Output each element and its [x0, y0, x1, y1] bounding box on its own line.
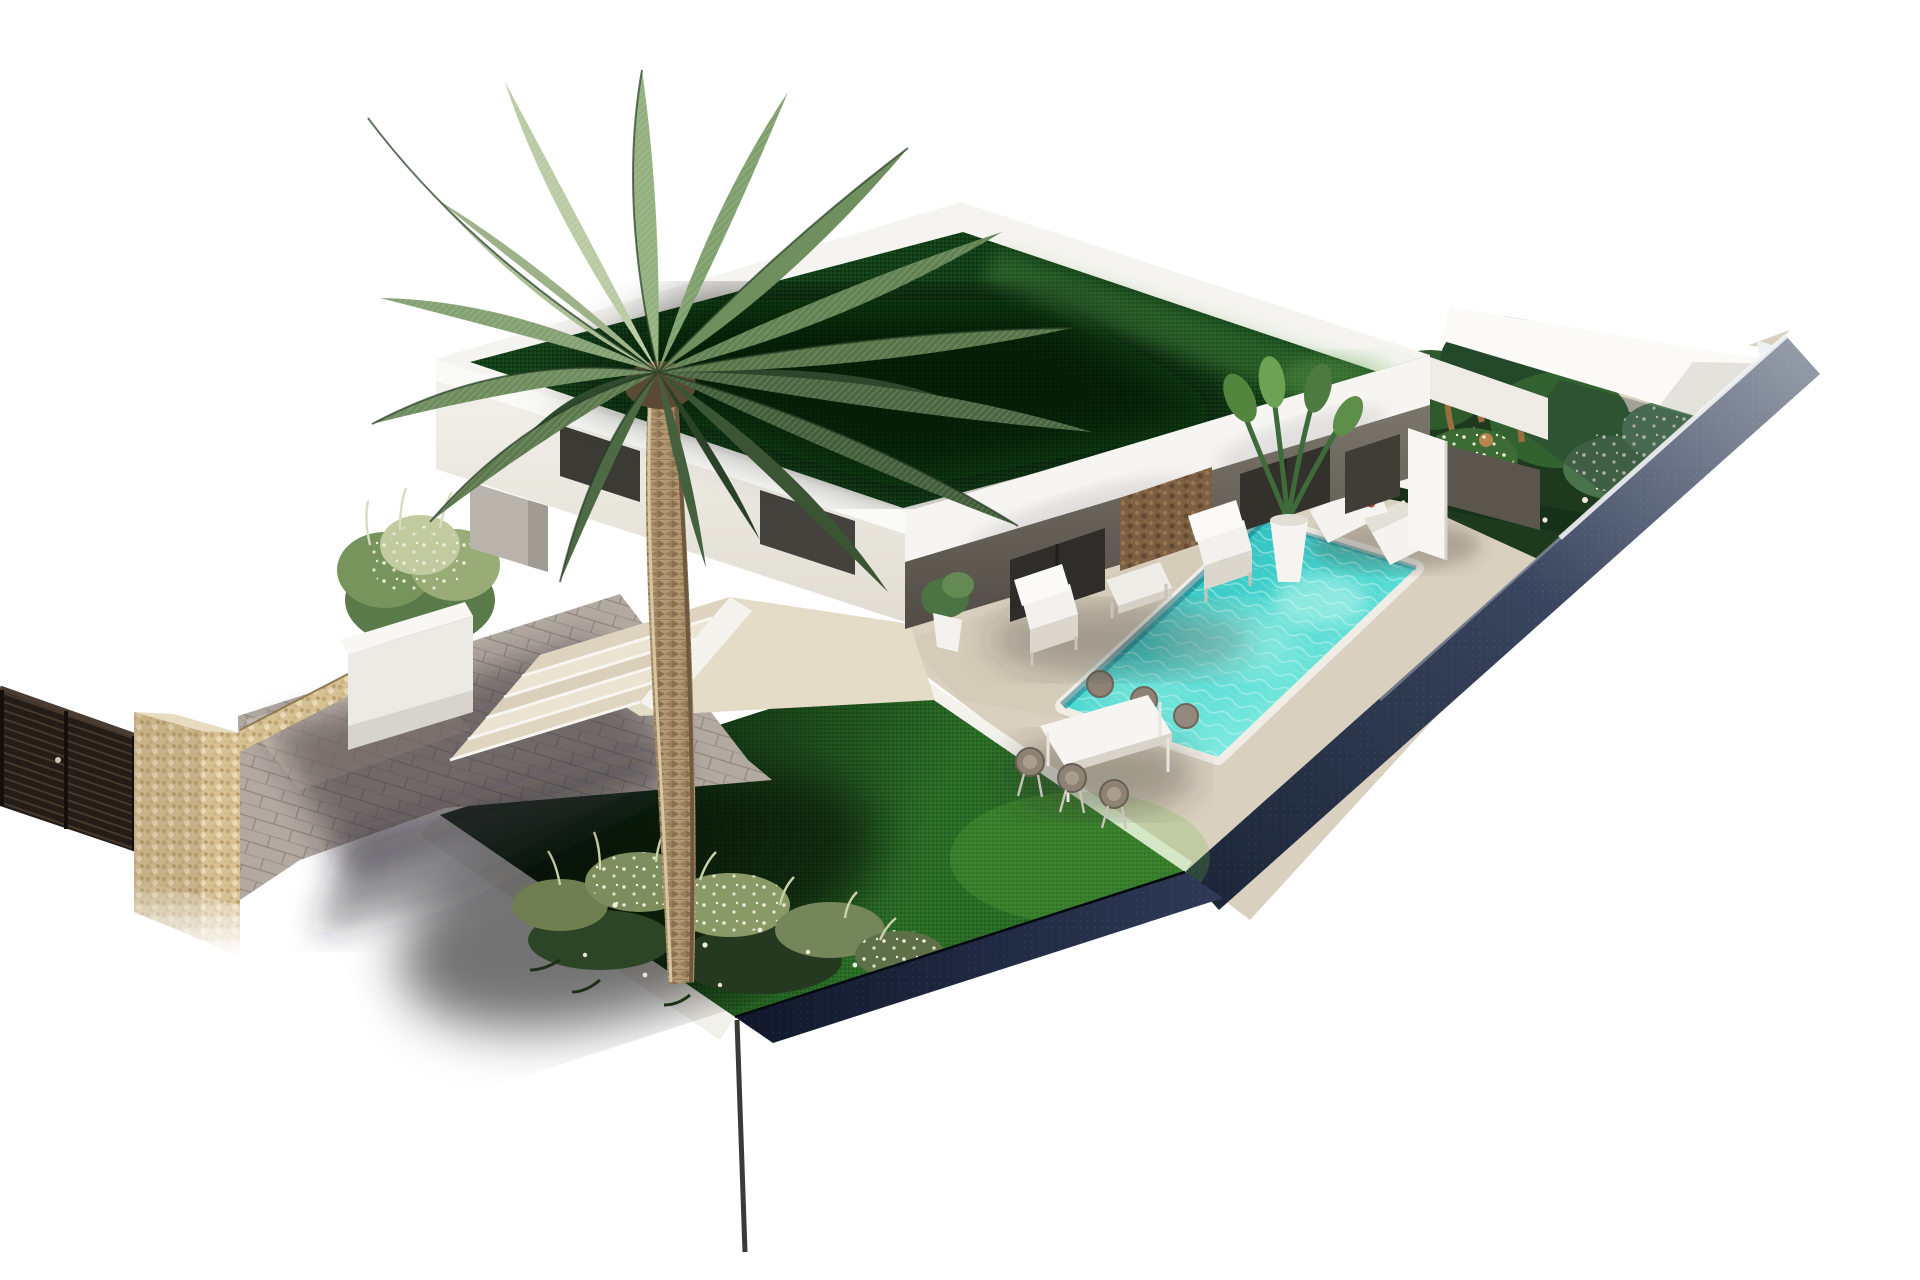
stone-pillar — [134, 712, 240, 955]
architectural-render: Aerial isometric 3D rendering of a moder… — [0, 0, 1920, 1280]
render-canvas: Aerial isometric 3D rendering of a moder… — [0, 0, 1920, 1280]
porch-column — [1408, 428, 1446, 560]
slatted-gate — [0, 688, 136, 852]
gate-handle — [55, 757, 61, 763]
wall-corner-edge — [737, 1020, 745, 1252]
